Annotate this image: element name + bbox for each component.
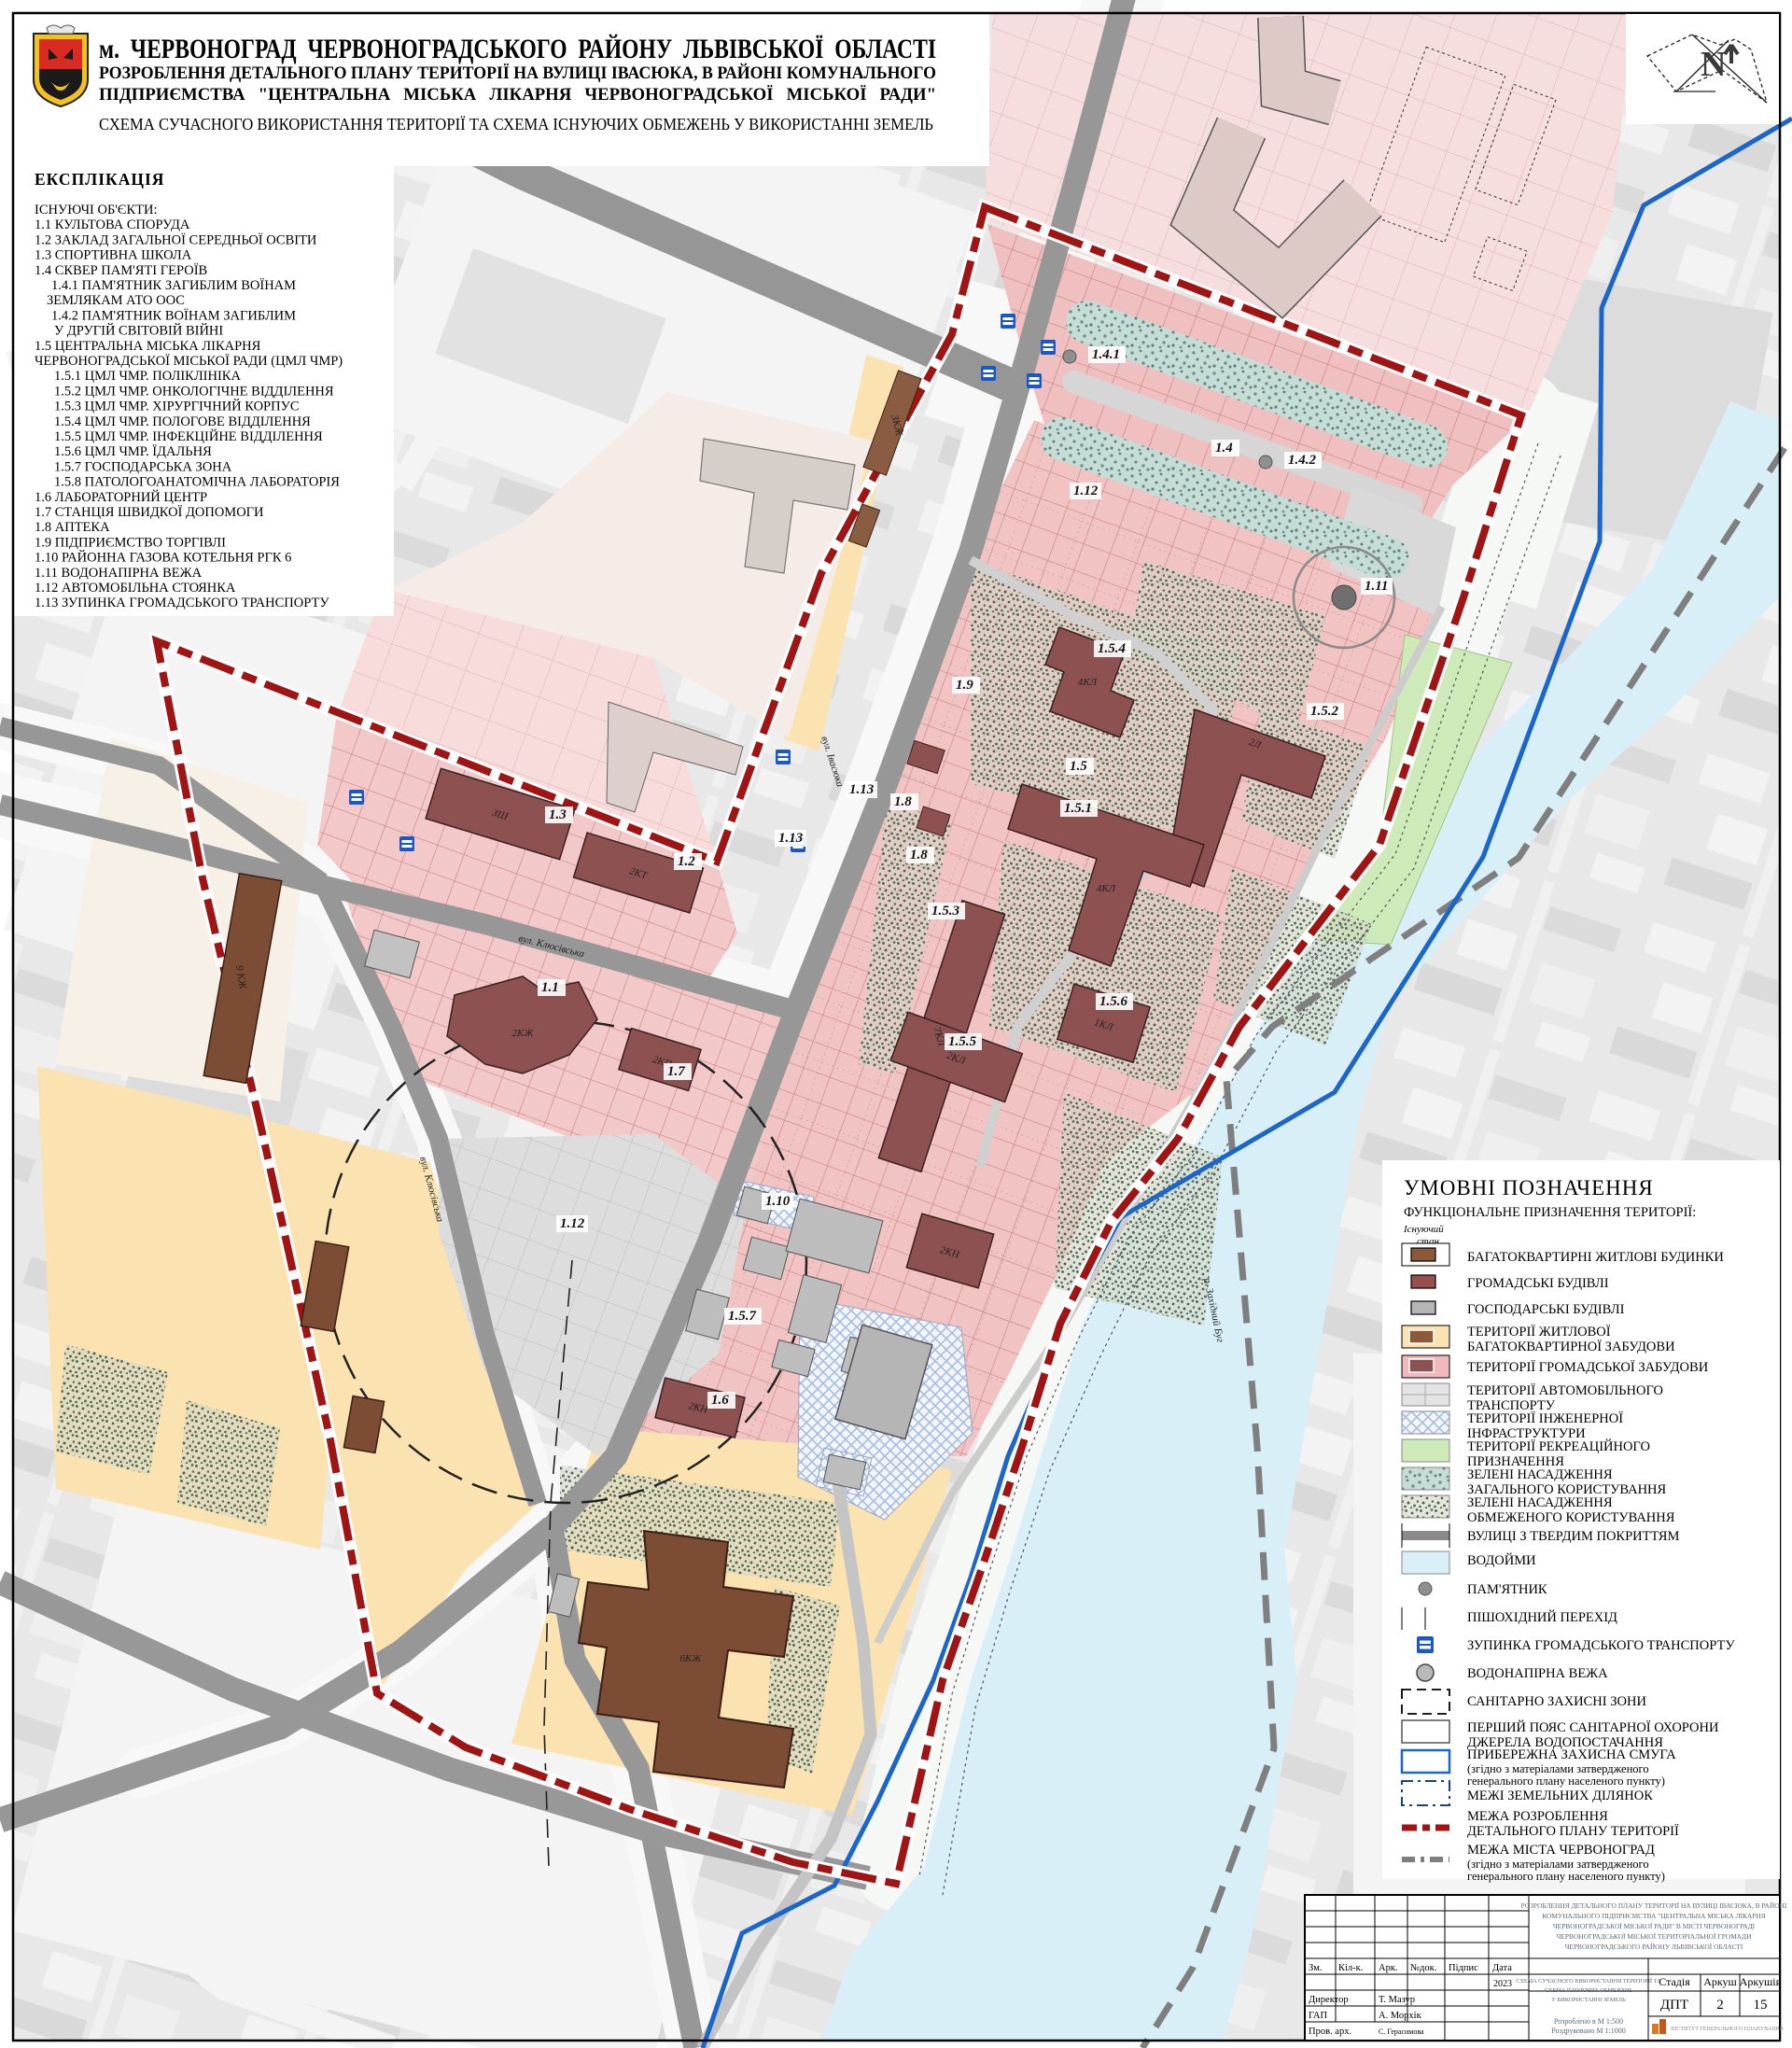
svg-text:ВОДОЙМИ: ВОДОЙМИ xyxy=(1467,1552,1536,1568)
svg-text:1.5.4 ЦМЛ ЧМР. ПОЛОГОВЕ ВІДДІЛ: 1.5.4 ЦМЛ ЧМР. ПОЛОГОВЕ ВІДДІЛЕННЯ xyxy=(54,414,311,429)
svg-text:2023: 2023 xyxy=(1493,1979,1512,1989)
svg-text:Кіл-к.: Кіл-к. xyxy=(1338,1963,1363,1973)
svg-text:Стадія: Стадія xyxy=(1659,1975,1690,1988)
svg-text:ГОСПОДАРСЬКІ БУДІВЛІ: ГОСПОДАРСЬКІ БУДІВЛІ xyxy=(1467,1302,1625,1317)
svg-text:1.5.2 ЦМЛ ЧМР. ОНКОЛОГІЧНЕ ВІД: 1.5.2 ЦМЛ ЧМР. ОНКОЛОГІЧНЕ ВІДДІЛЕННЯ xyxy=(54,384,334,399)
svg-text:Аркушів: Аркушів xyxy=(1740,1975,1782,1988)
svg-text:Директор: Директор xyxy=(1309,1995,1349,2005)
svg-text:ТЕРИТОРІЇ РЕКРЕАЦІЙНОГО: ТЕРИТОРІЇ РЕКРЕАЦІЙНОГО xyxy=(1467,1438,1650,1454)
svg-text:ТЕРИТОРІЇ ЖИТЛОВОЇ: ТЕРИТОРІЇ ЖИТЛОВОЇ xyxy=(1467,1324,1611,1340)
svg-text:УМОВНІ ПОЗНАЧЕННЯ: УМОВНІ ПОЗНАЧЕННЯ xyxy=(1404,1176,1654,1199)
svg-text:Аркуш: Аркуш xyxy=(1703,1975,1737,1988)
svg-text:МЕЖА РОЗРОБЛЕННЯ: МЕЖА РОЗРОБЛЕННЯ xyxy=(1467,1809,1608,1824)
svg-text:КОМУНАЛЬНОГО ПІДПРИЄМСТВА "ЦЕН: КОМУНАЛЬНОГО ПІДПРИЄМСТВА "ЦЕНТРАЛЬНА МІ… xyxy=(1542,1912,1765,1920)
svg-text:1.4.1: 1.4.1 xyxy=(1092,347,1120,362)
svg-text:2: 2 xyxy=(1716,1998,1724,2013)
svg-text:1.11: 1.11 xyxy=(1365,579,1388,594)
svg-text:БАГАТОКВАРТИРНІ ЖИТЛОВІ БУДИНК: БАГАТОКВАРТИРНІ ЖИТЛОВІ БУДИНКИ xyxy=(1467,1250,1724,1265)
svg-text:1.2: 1.2 xyxy=(678,854,695,869)
svg-text:ТЕРИТОРІЇ ІНЖЕНЕРНОЇ: ТЕРИТОРІЇ ІНЖЕНЕРНОЇ xyxy=(1467,1410,1623,1426)
svg-text:4КЛ: 4КЛ xyxy=(1097,883,1116,894)
svg-text:Існуючий: Існуючий xyxy=(1403,1224,1444,1235)
svg-text:ЧЕРВОНОГРАДСЬКОЇ МІСЬКОЇ РАДИ: ЧЕРВОНОГРАДСЬКОЇ МІСЬКОЇ РАДИ (ЦМЛ ЧМР) xyxy=(35,353,343,369)
svg-text:ЧЕРВОНОГРАДСЬКОЇ МІСЬКОЇ РАДИ": ЧЕРВОНОГРАДСЬКОЇ МІСЬКОЇ РАДИ" В МІСТІ Ч… xyxy=(1553,1922,1756,1930)
svg-text:1.5 ЦЕНТРАЛЬНА МІСЬКА ЛІКАРНЯ: 1.5 ЦЕНТРАЛЬНА МІСЬКА ЛІКАРНЯ xyxy=(35,339,261,354)
svg-text:ДЕТАЛЬНОГО ПЛАНУ ТЕРИТОРІЇ: ДЕТАЛЬНОГО ПЛАНУ ТЕРИТОРІЇ xyxy=(1467,1823,1679,1839)
svg-text:Т. Мазур: Т. Мазур xyxy=(1379,1995,1415,2005)
svg-text:1.13 ЗУПИНКА ГРОМАДСЬКОГО ТРАН: 1.13 ЗУПИНКА ГРОМАДСЬКОГО ТРАНСПОРТУ xyxy=(35,596,329,610)
svg-text:ДПТ: ДПТ xyxy=(1660,1998,1688,2013)
svg-text:СХЕМА СУЧАСНОГО ВИКОРИСТАННЯ Т: СХЕМА СУЧАСНОГО ВИКОРИСТАННЯ ТЕРИТОРІЇ Т… xyxy=(99,115,933,133)
svg-text:1.5.5 ЦМЛ ЧМР. ІНФЕКЦІЙНЕ ВІДД: 1.5.5 ЦМЛ ЧМР. ІНФЕКЦІЙНЕ ВІДДІЛЕННЯ xyxy=(54,428,323,444)
svg-text:1.4.2 ПАМ'ЯТНИК ВОЇНАМ ЗАГИБЛИ: 1.4.2 ПАМ'ЯТНИК ВОЇНАМ ЗАГИБЛИМ xyxy=(51,307,296,323)
svg-text:1.5.4: 1.5.4 xyxy=(1098,641,1127,656)
svg-text:1.3 СПОРТИВНА ШКОЛА: 1.3 СПОРТИВНА ШКОЛА xyxy=(35,248,192,263)
svg-text:ЗЕЛЕНІ НАСАДЖЕННЯ: ЗЕЛЕНІ НАСАДЖЕННЯ xyxy=(1467,1495,1613,1510)
svg-text:15: 15 xyxy=(1754,1998,1768,2013)
svg-text:БАГАТОКВАРТИРНОЇ ЗАБУДОВИ: БАГАТОКВАРТИРНОЇ ЗАБУДОВИ xyxy=(1467,1339,1675,1354)
svg-text:ВУЛИЦІ З ТВЕРДИМ ПОКРИТТЯМ: ВУЛИЦІ З ТВЕРДИМ ПОКРИТТЯМ xyxy=(1467,1529,1679,1544)
svg-text:ПІШОХІДНИЙ ПЕРЕХІД: ПІШОХІДНИЙ ПЕРЕХІД xyxy=(1467,1609,1617,1625)
svg-text:1.10 РАЙОННА ГАЗОВА КОТЕЛЬНЯ Р: 1.10 РАЙОННА ГАЗОВА КОТЕЛЬНЯ РГК 6 xyxy=(35,550,291,566)
svg-text:1.1: 1.1 xyxy=(541,980,559,995)
svg-text:1.5.2: 1.5.2 xyxy=(1310,704,1339,719)
svg-text:1.1 КУЛЬТОВА СПОРУДА: 1.1 КУЛЬТОВА СПОРУДА xyxy=(35,217,190,232)
svg-text:ПЕРШИЙ ПОЯС САНІТАРНОЇ ОХОРОНИ: ПЕРШИЙ ПОЯС САНІТАРНОЇ ОХОРОНИ xyxy=(1467,1719,1719,1735)
svg-text:1.8: 1.8 xyxy=(894,794,912,809)
svg-text:1.5.6: 1.5.6 xyxy=(1099,994,1128,1009)
svg-text:1.12 АВТОМОБІЛЬНА СТОЯНКА: 1.12 АВТОМОБІЛЬНА СТОЯНКА xyxy=(35,581,236,596)
svg-text:1.12: 1.12 xyxy=(560,1216,585,1231)
svg-text:ГАП: ГАП xyxy=(1309,2011,1328,2021)
svg-text:1.5.7: 1.5.7 xyxy=(728,1309,757,1324)
svg-text:генерального плану населеного: генерального плану населеного пункту) xyxy=(1467,1870,1665,1883)
svg-text:ОБМЕЖЕНОГО КОРИСТУВАННЯ: ОБМЕЖЕНОГО КОРИСТУВАННЯ xyxy=(1467,1510,1675,1525)
svg-text:1.5: 1.5 xyxy=(1070,759,1087,774)
svg-text:N: N xyxy=(1701,45,1726,84)
svg-text:Розроблено в М 1:500: Розроблено в М 1:500 xyxy=(1554,2017,1623,2026)
svg-text:1.6 ЛАБОРАТОРНИЙ ЦЕНТР: 1.6 ЛАБОРАТОРНИЙ ЦЕНТР xyxy=(35,489,207,505)
svg-text:м. ЧЕРВОНОГРАД ЧЕРВОНОГРАДСЬ: м. ЧЕРВОНОГРАД ЧЕРВОНОГРАДСЬКОГО РАЙОНУ … xyxy=(99,34,936,64)
svg-text:1.13: 1.13 xyxy=(849,782,875,797)
svg-text:1.5.3: 1.5.3 xyxy=(931,904,960,919)
svg-text:1.13: 1.13 xyxy=(778,831,804,846)
svg-text:1.3: 1.3 xyxy=(549,807,567,822)
svg-text:1.8: 1.8 xyxy=(910,848,928,863)
svg-text:ІСНУЮЧІ ОБ'ЄКТИ:: ІСНУЮЧІ ОБ'ЄКТИ: xyxy=(35,203,157,217)
svg-text:1.5.3 ЦМЛ ЧМР. ХІРУРГІЧНИЙ КОР: 1.5.3 ЦМЛ ЧМР. ХІРУРГІЧНИЙ КОРПУС xyxy=(54,399,300,414)
svg-text:1.4: 1.4 xyxy=(1215,441,1233,456)
svg-text:МЕЖІ ЗЕМЕЛЬНИХ ДІЛЯНОК: МЕЖІ ЗЕМЕЛЬНИХ ДІЛЯНОК xyxy=(1467,1788,1653,1803)
svg-text:(згідно з матеріалами затвердж: (згідно з матеріалами затвердженого xyxy=(1467,1762,1649,1775)
svg-text:РОЗРОБЛЕННЯ ДЕТАЛЬНОГО ПЛАНУ Т: РОЗРОБЛЕННЯ ДЕТАЛЬНОГО ПЛАНУ ТЕРИТОРІЇ Н… xyxy=(99,63,936,83)
svg-text:У ДРУГІЙ СВІТОВІЙ ВІЙНІ: У ДРУГІЙ СВІТОВІЙ ВІЙНІ xyxy=(54,323,223,339)
svg-text:Роздруковано М 1:1000: Роздруковано М 1:1000 xyxy=(1551,2027,1626,2035)
svg-text:6КЖ: 6КЖ xyxy=(680,1653,703,1664)
svg-text:ТЕРИТОРІЇ ГРОМАДСЬКОЇ ЗАБУДОВИ: ТЕРИТОРІЇ ГРОМАДСЬКОЇ ЗАБУДОВИ xyxy=(1467,1359,1709,1375)
svg-text:МЕЖА МІСТА ЧЕРВОНОГРАД: МЕЖА МІСТА ЧЕРВОНОГРАД xyxy=(1467,1843,1655,1858)
svg-text:(згідно з матеріалами затвердж: (згідно з матеріалами затвердженого xyxy=(1467,1858,1649,1871)
svg-text:ПІДПРИЄМСТВА "ЦЕНТРАЛЬНА М: ПІДПРИЄМСТВА "ЦЕНТРАЛЬНА МІСЬКА ЛІКАРНЯ … xyxy=(99,85,936,105)
svg-text:1.7 СТАНЦІЯ ШВИДКОЇ ДОПОМОГИ: 1.7 СТАНЦІЯ ШВИДКОЇ ДОПОМОГИ xyxy=(35,504,264,520)
svg-text:ПРИБЕРЕЖНА ЗАХИСНА СМУГА: ПРИБЕРЕЖНА ЗАХИСНА СМУГА xyxy=(1467,1747,1676,1762)
svg-text:РОЗРОБЛЕННЯ ДЕТАЛЬНОГО ПЛАНУ Т: РОЗРОБЛЕННЯ ДЕТАЛЬНОГО ПЛАНУ ТЕРИТОРІЇ Н… xyxy=(1521,1901,1787,1910)
svg-text:ЧЕРВОНОГРАДСЬКОГО РАЙОНУ ЛЬВІВ: ЧЕРВОНОГРАДСЬКОГО РАЙОНУ ЛЬВІВСЬКОЇ ОБЛА… xyxy=(1565,1943,1743,1951)
svg-text:1.6: 1.6 xyxy=(711,1393,729,1408)
svg-text:Дата: Дата xyxy=(1492,1963,1512,1973)
svg-text:1.5.1: 1.5.1 xyxy=(1064,801,1092,816)
svg-text:1.2 ЗАКЛАД ЗАГАЛЬНОЇ СЕРЕДНЬОЇ: 1.2 ЗАКЛАД ЗАГАЛЬНОЇ СЕРЕДНЬОЇ ОСВІТИ xyxy=(35,231,317,247)
svg-text:СХЕМА ІСНУЮЧИХ ОБМЕЖЕНЬ: СХЕМА ІСНУЮЧИХ ОБМЕЖЕНЬ xyxy=(1545,1987,1632,1994)
svg-text:ЗЕМЛЯКАМ АТО ООС: ЗЕМЛЯКАМ АТО ООС xyxy=(47,293,185,308)
svg-text:1.5.1 ЦМЛ ЧМР. ПОЛІКЛІНІКА: 1.5.1 ЦМЛ ЧМР. ПОЛІКЛІНІКА xyxy=(54,369,241,384)
svg-text:№док.: №док. xyxy=(1410,1963,1436,1973)
svg-text:2КЖ: 2КЖ xyxy=(512,1028,535,1039)
svg-text:ФУНКЦІОНАЛЬНЕ ПРИЗНАЧЕННЯ ТЕРИ: ФУНКЦІОНАЛЬНЕ ПРИЗНАЧЕННЯ ТЕРИТОРІЇ: xyxy=(1404,1204,1696,1220)
svg-text:1.11 ВОДОНАПІРНА ВЕЖА: 1.11 ВОДОНАПІРНА ВЕЖА xyxy=(35,566,203,581)
svg-text:1.5.6 ЦМЛ ЧМР. ЇДАЛЬНЯ: 1.5.6 ЦМЛ ЧМР. ЇДАЛЬНЯ xyxy=(54,443,212,459)
svg-text:ЗУПИНКА ГРОМАДСЬКОГО ТРАНСПОРТ: ЗУПИНКА ГРОМАДСЬКОГО ТРАНСПОРТУ xyxy=(1467,1638,1735,1653)
svg-text:1.4.1 ПАМ'ЯТНИК ЗАГИБЛИМ ВОЇНА: 1.4.1 ПАМ'ЯТНИК ЗАГИБЛИМ ВОЇНАМ xyxy=(51,277,296,293)
svg-text:С. Герасимова: С. Герасимова xyxy=(1379,2027,1424,2036)
svg-text:У ВИКОРИСТАННІ ЗЕМЕЛЬ: У ВИКОРИСТАННІ ЗЕМЕЛЬ xyxy=(1551,1997,1626,2003)
svg-text:1.7: 1.7 xyxy=(667,1064,685,1079)
svg-text:1.12: 1.12 xyxy=(1073,484,1099,498)
svg-text:Пров. арх.: Пров. арх. xyxy=(1309,2027,1351,2037)
svg-text:А. Морхік: А. Морхік xyxy=(1379,2011,1422,2021)
svg-text:ГРОМАДСЬКІ БУДІВЛІ: ГРОМАДСЬКІ БУДІВЛІ xyxy=(1467,1276,1609,1291)
svg-text:1.5.7 ГОСПОДАРСЬКА ЗОНА: 1.5.7 ГОСПОДАРСЬКА ЗОНА xyxy=(54,459,232,474)
svg-text:Підпис: Підпис xyxy=(1449,1963,1478,1973)
svg-text:ЕКСПЛІКАЦІЯ: ЕКСПЛІКАЦІЯ xyxy=(35,170,164,189)
svg-text:ЧЕРВОНОГРАДСЬКОЇ МІСЬКОЇ ТЕРИТ: ЧЕРВОНОГРАДСЬКОЇ МІСЬКОЇ ТЕРИТОРІАЛЬНОЇ … xyxy=(1557,1932,1752,1941)
svg-text:ТЕРИТОРІЇ АВТОМОБІЛЬНОГО: ТЕРИТОРІЇ АВТОМОБІЛЬНОГО xyxy=(1467,1382,1663,1398)
svg-text:САНІТАРНО ЗАХИСНІ ЗОНИ: САНІТАРНО ЗАХИСНІ ЗОНИ xyxy=(1467,1694,1646,1709)
svg-text:1.9: 1.9 xyxy=(956,678,973,693)
svg-text:1.4.2: 1.4.2 xyxy=(1288,453,1317,468)
svg-text:1.5.8 ПАТОЛОГОАНАТОМІЧНА ЛАБОР: 1.5.8 ПАТОЛОГОАНАТОМІЧНА ЛАБОРАТОРІЯ xyxy=(54,475,340,490)
svg-text:1.5.5: 1.5.5 xyxy=(948,1034,977,1049)
svg-text:ЗЕЛЕНІ НАСАДЖЕННЯ: ЗЕЛЕНІ НАСАДЖЕННЯ xyxy=(1467,1467,1613,1482)
svg-text:1.9 ПІДПРИЄМСТВО ТОРГІВЛІ: 1.9 ПІДПРИЄМСТВО ТОРГІВЛІ xyxy=(35,535,226,550)
svg-text:ПАМ'ЯТНИК: ПАМ'ЯТНИК xyxy=(1467,1582,1547,1597)
svg-text:СХЕМА СУЧАСНОГО ВИКОРИСТАННЯ Т: СХЕМА СУЧАСНОГО ВИКОРИСТАННЯ ТЕРИТОРІЇ Т… xyxy=(1516,1978,1661,1985)
svg-text:ВОДОНАПІРНА ВЕЖА: ВОДОНАПІРНА ВЕЖА xyxy=(1467,1666,1608,1681)
svg-text:генерального плану населеного: генерального плану населеного пункту) xyxy=(1467,1774,1665,1788)
svg-text:Арк.: Арк. xyxy=(1379,1963,1398,1973)
svg-text:1.4 СКВЕР ПАМ'ЯТІ ГЕРОЇВ: 1.4 СКВЕР ПАМ'ЯТІ ГЕРОЇВ xyxy=(35,262,207,278)
svg-text:4КЛ: 4КЛ xyxy=(1078,677,1098,688)
svg-text:Зм.: Зм. xyxy=(1309,1963,1323,1973)
svg-text:ІНСТИТУТ ГЕНЕРАЛЬНОГО ПЛАНУВАН: ІНСТИТУТ ГЕНЕРАЛЬНОГО ПЛАНУВАННЯ xyxy=(1671,2027,1784,2032)
svg-text:1.10: 1.10 xyxy=(765,1194,791,1209)
svg-text:1.8 АПТЕКА: 1.8 АПТЕКА xyxy=(35,520,110,535)
